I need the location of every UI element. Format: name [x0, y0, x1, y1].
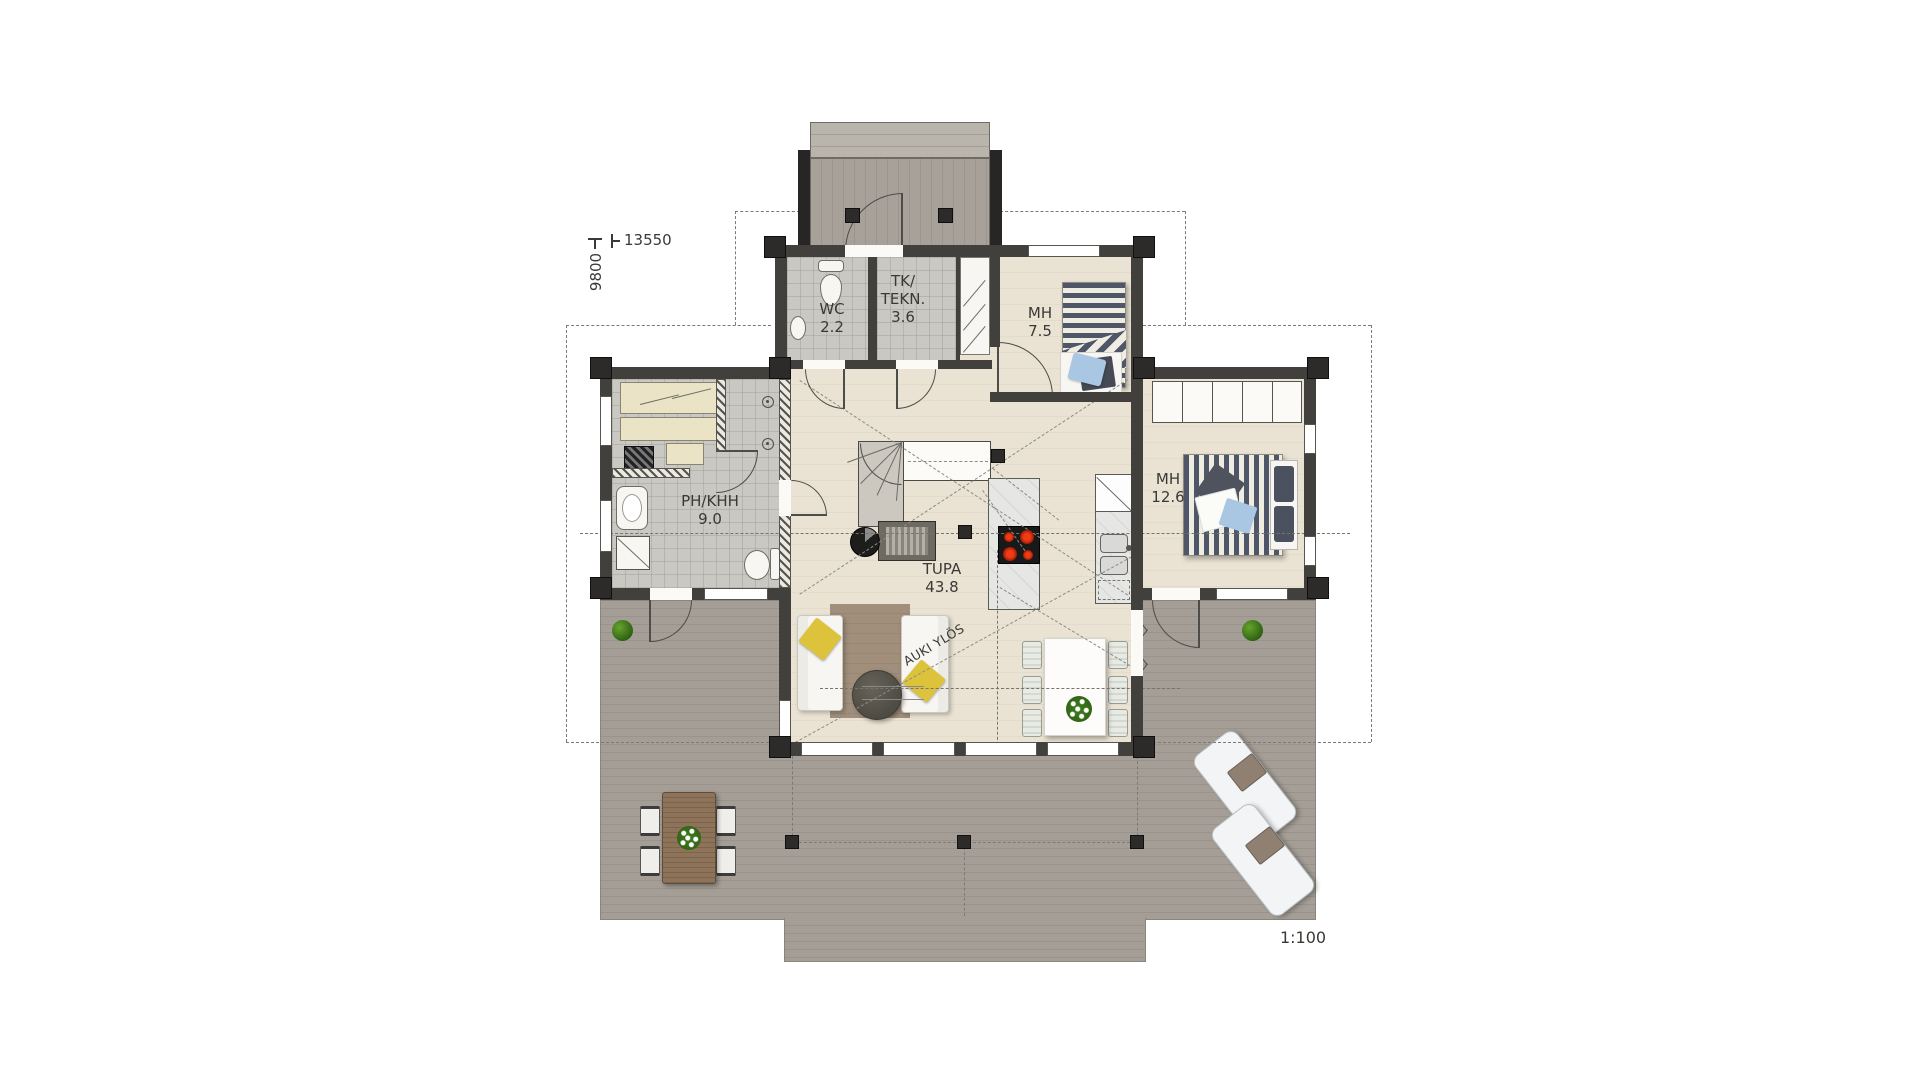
pergola-line: [792, 756, 793, 836]
wall: [990, 392, 1143, 402]
terrace-door-opening: [650, 588, 692, 600]
roof-overhang-line: [995, 211, 1185, 212]
window: [1047, 742, 1119, 756]
room-label-tk-tekn: TK/ TEKN. 3.6: [868, 272, 938, 326]
log-corner-post: [590, 577, 612, 599]
dim-width-label: 13550: [624, 231, 672, 249]
roof-overhang-line: [566, 325, 771, 326]
room-name: TUPA: [906, 560, 978, 578]
log-corner-post: [769, 736, 791, 758]
toilet-bowl: [744, 550, 770, 580]
dining-chair: [1108, 676, 1128, 704]
head-pillow: [1274, 466, 1294, 502]
wc-door-opening: [803, 360, 845, 369]
axis-line: [997, 550, 998, 755]
room-label-mh-small: MH 7.5: [1008, 304, 1072, 340]
terrace-door-leaf: [649, 600, 651, 642]
table-mark: [862, 699, 924, 700]
room-area: 9.0: [666, 510, 754, 528]
roof-overhang-line: [1371, 325, 1372, 742]
log-corner-post: [1133, 236, 1155, 258]
log-corner-post: [1133, 736, 1155, 758]
burner: [1023, 550, 1033, 560]
window: [1028, 245, 1100, 257]
sauna-bench: [620, 417, 718, 441]
roof-overhang-line: [1143, 325, 1371, 326]
head-pillow: [1274, 506, 1294, 542]
room-name: MH: [1134, 470, 1202, 488]
log-corner-post: [1133, 357, 1155, 379]
log-corner-post: [764, 236, 786, 258]
room-name: TK/: [868, 272, 938, 290]
sink-basin: [1100, 534, 1128, 553]
pergola-line: [1137, 756, 1138, 836]
washbasin-inner: [622, 494, 642, 522]
roof-overhang-line: [1143, 742, 1371, 743]
wall: [990, 257, 1000, 347]
table-mark: [862, 686, 924, 687]
room-label-tupa: TUPA 43.8: [906, 560, 978, 596]
room-name: MH: [1008, 304, 1072, 322]
dining-chair: [1022, 641, 1042, 669]
structural-post: [991, 449, 1005, 463]
log-corner-post: [590, 357, 612, 379]
mh-large-door-leaf: [1198, 600, 1200, 648]
tekn-door-opening: [896, 360, 938, 369]
ph-door-opening: [779, 480, 791, 516]
room-label-wc: WC 2.2: [800, 300, 864, 336]
room-area: 3.6: [868, 308, 938, 326]
dining-chair: [1108, 709, 1128, 737]
table-plant: [1066, 696, 1092, 722]
porch-post-left: [845, 208, 860, 223]
burner: [1003, 547, 1017, 561]
log-corner-post: [1307, 577, 1329, 599]
structural-post: [958, 525, 972, 539]
window: [883, 742, 955, 756]
wood-stove: [850, 527, 880, 557]
pergola-line: [964, 842, 965, 916]
terrace-deck-extension: [784, 918, 1146, 962]
roof-overhang-line: [1185, 211, 1186, 325]
sauna-bench-step: [666, 443, 704, 465]
log-corner-post: [1307, 357, 1329, 379]
dishwasher: [1098, 580, 1130, 600]
room-area: 7.5: [1008, 322, 1072, 340]
table-plant: [677, 826, 701, 850]
roof-overhang-line: [566, 325, 567, 742]
tekn-door-leaf: [896, 369, 898, 409]
window: [1216, 588, 1288, 600]
mh-large-door-opening: [1152, 588, 1200, 600]
window: [1304, 536, 1316, 566]
potted-plant: [1242, 620, 1263, 641]
floor-plan: WC 2.2 TK/ TEKN. 3.6 MH 7.5 MH 12.6 PH/K…: [0, 0, 1920, 1080]
sauna-wall-hatched: [612, 468, 690, 478]
porch-wall-right: [990, 150, 1002, 257]
axis-line: [820, 688, 1180, 689]
outdoor-chair: [640, 846, 660, 876]
wall: [956, 257, 960, 360]
room-area: 2.2: [800, 318, 864, 336]
wardrobe: [1152, 381, 1302, 423]
entrance-steps: [810, 122, 990, 158]
room-name: PH/KHH: [666, 492, 754, 510]
outdoor-chair: [716, 846, 736, 876]
outdoor-chair: [640, 806, 660, 836]
toilet-tank: [818, 260, 844, 272]
window: [1304, 424, 1316, 454]
room-name: WC: [800, 300, 864, 318]
pergola-post: [785, 835, 799, 849]
dim-tick: [611, 240, 620, 242]
scale-label: 1:100: [1268, 929, 1338, 947]
window: [704, 588, 768, 600]
porch-post-right: [938, 208, 953, 223]
pergola-post: [957, 835, 971, 849]
entrance-door-opening: [845, 245, 903, 257]
fireplace-hearth: [886, 527, 928, 555]
window: [600, 500, 612, 552]
shower-icon: [762, 396, 774, 408]
wall: [600, 367, 791, 379]
outdoor-chair: [716, 806, 736, 836]
window: [801, 742, 873, 756]
burner: [1004, 532, 1014, 542]
porch-wall-left: [798, 150, 810, 257]
pergola-post: [1130, 835, 1144, 849]
sauna-wall-hatched: [716, 379, 726, 451]
bifold-terrace-door-opening: [1131, 610, 1143, 676]
log-corner-post: [769, 357, 791, 379]
roof-overhang-line: [566, 742, 779, 743]
entrance-door-leaf: [901, 193, 903, 251]
room-label-mh-large: MH 12.6: [1134, 470, 1202, 506]
room-label-ph-khh: PH/KHH 9.0: [666, 492, 754, 528]
dining-chair: [1022, 676, 1042, 704]
room-area: 43.8: [906, 578, 978, 596]
window: [600, 396, 612, 446]
dining-chair: [1022, 709, 1042, 737]
roof-overhang-line: [735, 211, 736, 325]
wall: [1143, 367, 1316, 379]
shower-icon: [762, 438, 774, 450]
window: [965, 742, 1037, 756]
dim-height-label: 9800: [587, 242, 605, 302]
ph-door-leaf: [791, 514, 827, 516]
wc-door-leaf: [843, 369, 845, 409]
mh-small-door-leaf: [997, 342, 999, 397]
room-area: 12.6: [1134, 488, 1202, 506]
potted-plant: [612, 620, 633, 641]
stair-up-line: [908, 461, 988, 462]
roof-overhang-line: [735, 211, 800, 212]
burner: [1020, 530, 1034, 544]
room-name: TEKN.: [868, 290, 938, 308]
